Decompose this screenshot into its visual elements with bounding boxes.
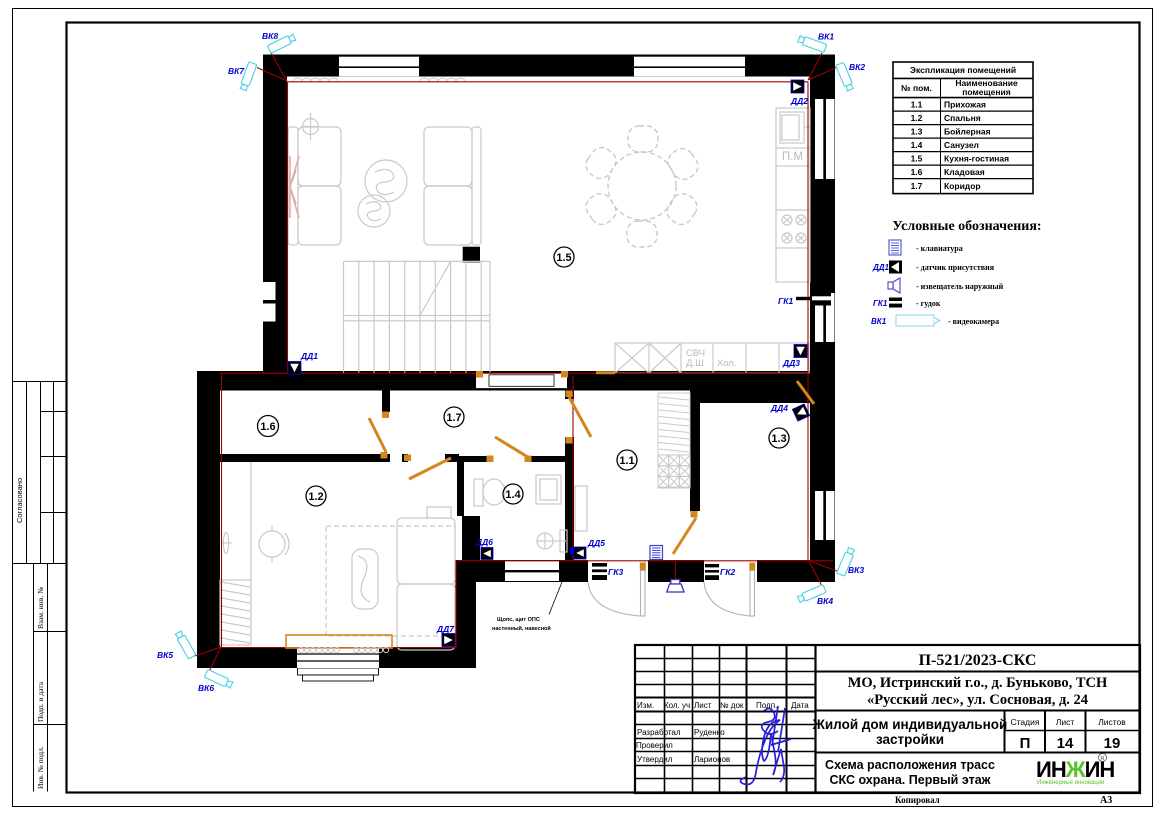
svg-text:Подп. и дата: Подп. и дата [36, 681, 45, 722]
svg-text:СКС охрана. Первый этаж: СКС охрана. Первый этаж [829, 773, 990, 787]
svg-text:1.6: 1.6 [260, 421, 275, 433]
svg-text:ДД3: ДД3 [782, 358, 800, 368]
svg-text:«Русский лес», ул. Сосновая, д: «Русский лес», ул. Сосновая, д. 24 [867, 692, 1088, 708]
svg-text:Кладовая: Кладовая [944, 167, 985, 177]
svg-text:ВК3: ВК3 [848, 565, 864, 575]
svg-text:Ларионов: Ларионов [694, 755, 730, 764]
svg-text:1.5: 1.5 [556, 252, 571, 264]
svg-text:ДД6: ДД6 [475, 537, 493, 547]
svg-text:- извещатель наружный: - извещатель наружный [916, 282, 1004, 291]
svg-text:Жилой дом индивидуальной: Жилой дом индивидуальной [812, 717, 1008, 732]
svg-text:Листов: Листов [1098, 717, 1126, 727]
svg-text:1.3: 1.3 [771, 433, 786, 445]
svg-text:Лист: Лист [694, 701, 712, 710]
svg-text:1.4: 1.4 [911, 140, 923, 150]
svg-text:1.1: 1.1 [619, 455, 634, 467]
svg-text:Стадия: Стадия [1011, 717, 1040, 727]
svg-text:1.4: 1.4 [505, 489, 521, 501]
svg-text:Экспликация помещений: Экспликация помещений [910, 65, 1016, 75]
svg-text:ГК3: ГК3 [608, 567, 623, 577]
svg-text:Щопс, щит ОПС: Щопс, щит ОПС [497, 617, 540, 623]
svg-text:1.7: 1.7 [446, 412, 461, 424]
svg-text:П: П [1020, 735, 1031, 752]
svg-text:ВК2: ВК2 [849, 62, 865, 72]
svg-text:- видеокамера: - видеокамера [948, 317, 999, 326]
svg-text:19: 19 [1104, 735, 1121, 752]
svg-text:ДД1: ДД1 [300, 351, 318, 361]
svg-text:П.М: П.М [782, 151, 803, 163]
svg-text:1.5: 1.5 [911, 154, 923, 164]
svg-text:Кол. уч: Кол. уч [664, 701, 690, 710]
svg-text:1.3: 1.3 [911, 127, 923, 137]
svg-text:ВК6: ВК6 [198, 683, 214, 693]
svg-text:Взам. инв. №: Взам. инв. № [36, 587, 45, 629]
svg-text:ДД7: ДД7 [436, 624, 455, 634]
svg-text:ГК2: ГК2 [720, 567, 735, 577]
svg-text:Схема расположения трасс: Схема расположения трасс [825, 758, 995, 772]
svg-text:ВК7: ВК7 [228, 66, 245, 76]
svg-text:ДД1: ДД1 [872, 263, 890, 272]
svg-text:ВК1: ВК1 [818, 32, 834, 42]
svg-text:ВК1: ВК1 [871, 317, 887, 326]
svg-text:Бойлерная: Бойлерная [944, 127, 991, 137]
svg-text:Инв. № подл.: Инв. № подл. [36, 746, 45, 789]
svg-text:ВК4: ВК4 [817, 596, 833, 606]
svg-text:1.7: 1.7 [911, 181, 923, 191]
svg-text:Проверил: Проверил [636, 741, 673, 750]
svg-text:ВК5: ВК5 [157, 650, 173, 660]
svg-text:Разработал: Разработал [637, 728, 681, 737]
svg-text:R: R [1101, 756, 1105, 762]
svg-text:- гудок: - гудок [916, 299, 941, 308]
svg-text:№ док: № док [720, 701, 744, 710]
svg-text:1.2: 1.2 [911, 113, 923, 123]
svg-text:МО, Истринский г.о., д. Бунько: МО, Истринский г.о., д. Буньково, ТСН [848, 675, 1108, 691]
svg-text:Коридор: Коридор [944, 181, 981, 191]
svg-text:1.1: 1.1 [911, 100, 923, 110]
svg-text:ГК1: ГК1 [778, 296, 793, 306]
svg-text:П-521/2023-СКС: П-521/2023-СКС [919, 652, 1037, 669]
svg-text:Дата: Дата [791, 701, 809, 710]
svg-text:№ пом.: № пом. [901, 83, 932, 93]
svg-text:Руденко: Руденко [694, 728, 725, 737]
svg-text:ДД4: ДД4 [770, 403, 788, 413]
svg-text:Инженерные инновации: Инженерные инновации [1037, 780, 1105, 786]
svg-text:ДД5: ДД5 [587, 538, 605, 548]
svg-text:Санузел: Санузел [944, 140, 979, 150]
svg-text:Утвердил: Утвердил [637, 755, 673, 764]
svg-text:помещения: помещения [962, 87, 1010, 97]
svg-text:Лист: Лист [1056, 717, 1075, 727]
svg-text:Д.Ш: Д.Ш [686, 358, 704, 369]
svg-text:14: 14 [1057, 735, 1074, 752]
svg-text:Согласовано: Согласовано [15, 478, 24, 523]
svg-text:настенный, навесной: настенный, навесной [492, 625, 551, 632]
svg-text:Спальня: Спальня [944, 113, 981, 123]
svg-text:застройки: застройки [876, 732, 944, 747]
svg-text:ВК8: ВК8 [262, 31, 278, 41]
svg-text:А3: А3 [1100, 795, 1112, 806]
svg-text:ГК1: ГК1 [873, 299, 888, 308]
svg-text:Кухня-гостиная: Кухня-гостиная [944, 154, 1009, 164]
svg-text:Условные обозначения:: Условные обозначения: [892, 219, 1041, 234]
svg-text:- датчик присутствия: - датчик присутствия [916, 263, 995, 272]
svg-text:1.6: 1.6 [911, 167, 923, 177]
svg-text:- клавиатура: - клавиатура [916, 244, 963, 253]
svg-text:Прихожая: Прихожая [944, 100, 986, 110]
svg-text:ДД2: ДД2 [790, 96, 808, 106]
svg-text:Изм.: Изм. [637, 701, 654, 710]
svg-text:Хол.: Хол. [717, 358, 737, 369]
svg-text:1.2: 1.2 [308, 491, 323, 503]
svg-text:Копировал: Копировал [895, 795, 940, 805]
